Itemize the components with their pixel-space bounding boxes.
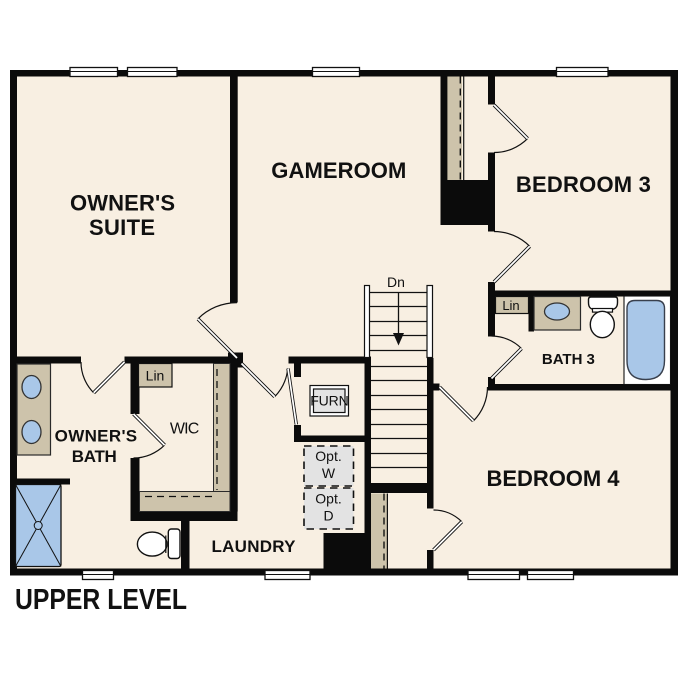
svg-text:Dn: Dn: [387, 274, 405, 290]
svg-text:LAUNDRY: LAUNDRY: [212, 537, 297, 556]
svg-text:Lin: Lin: [146, 368, 165, 384]
svg-text:BATH 3: BATH 3: [542, 351, 595, 368]
svg-text:BEDROOM 3: BEDROOM 3: [516, 172, 651, 197]
svg-text:FURN: FURN: [310, 393, 349, 409]
svg-text:Opt.: Opt.: [315, 448, 341, 464]
svg-text:WIC: WIC: [170, 421, 200, 438]
svg-text:W: W: [322, 465, 336, 481]
svg-text:UPPER LEVEL: UPPER LEVEL: [15, 584, 187, 616]
svg-text:OWNER'S: OWNER'S: [70, 191, 175, 216]
svg-text:Opt.: Opt.: [315, 491, 341, 507]
svg-text:OWNER'S: OWNER'S: [55, 426, 137, 445]
svg-text:SUITE: SUITE: [89, 215, 155, 240]
svg-text:GAMEROOM: GAMEROOM: [271, 158, 406, 183]
svg-text:Lin: Lin: [502, 298, 519, 313]
svg-text:D: D: [323, 508, 333, 524]
svg-text:BEDROOM 4: BEDROOM 4: [487, 466, 621, 491]
svg-text:BATH: BATH: [72, 447, 117, 466]
